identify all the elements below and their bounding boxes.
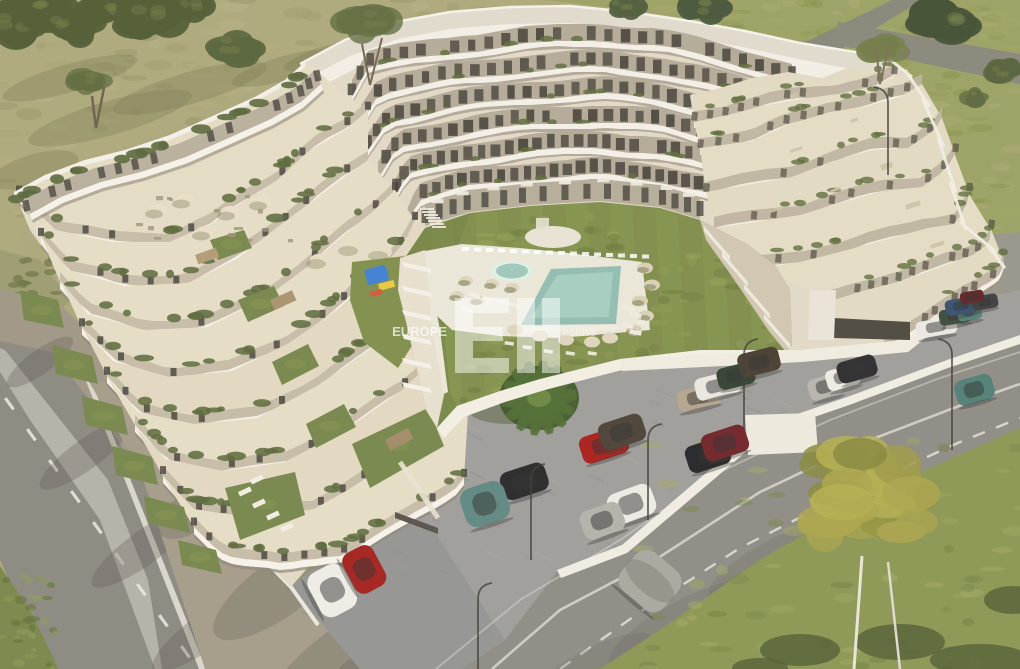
svg-text:homes: homes xyxy=(563,327,597,339)
svg-text:EUROPE: EUROPE xyxy=(392,324,447,339)
